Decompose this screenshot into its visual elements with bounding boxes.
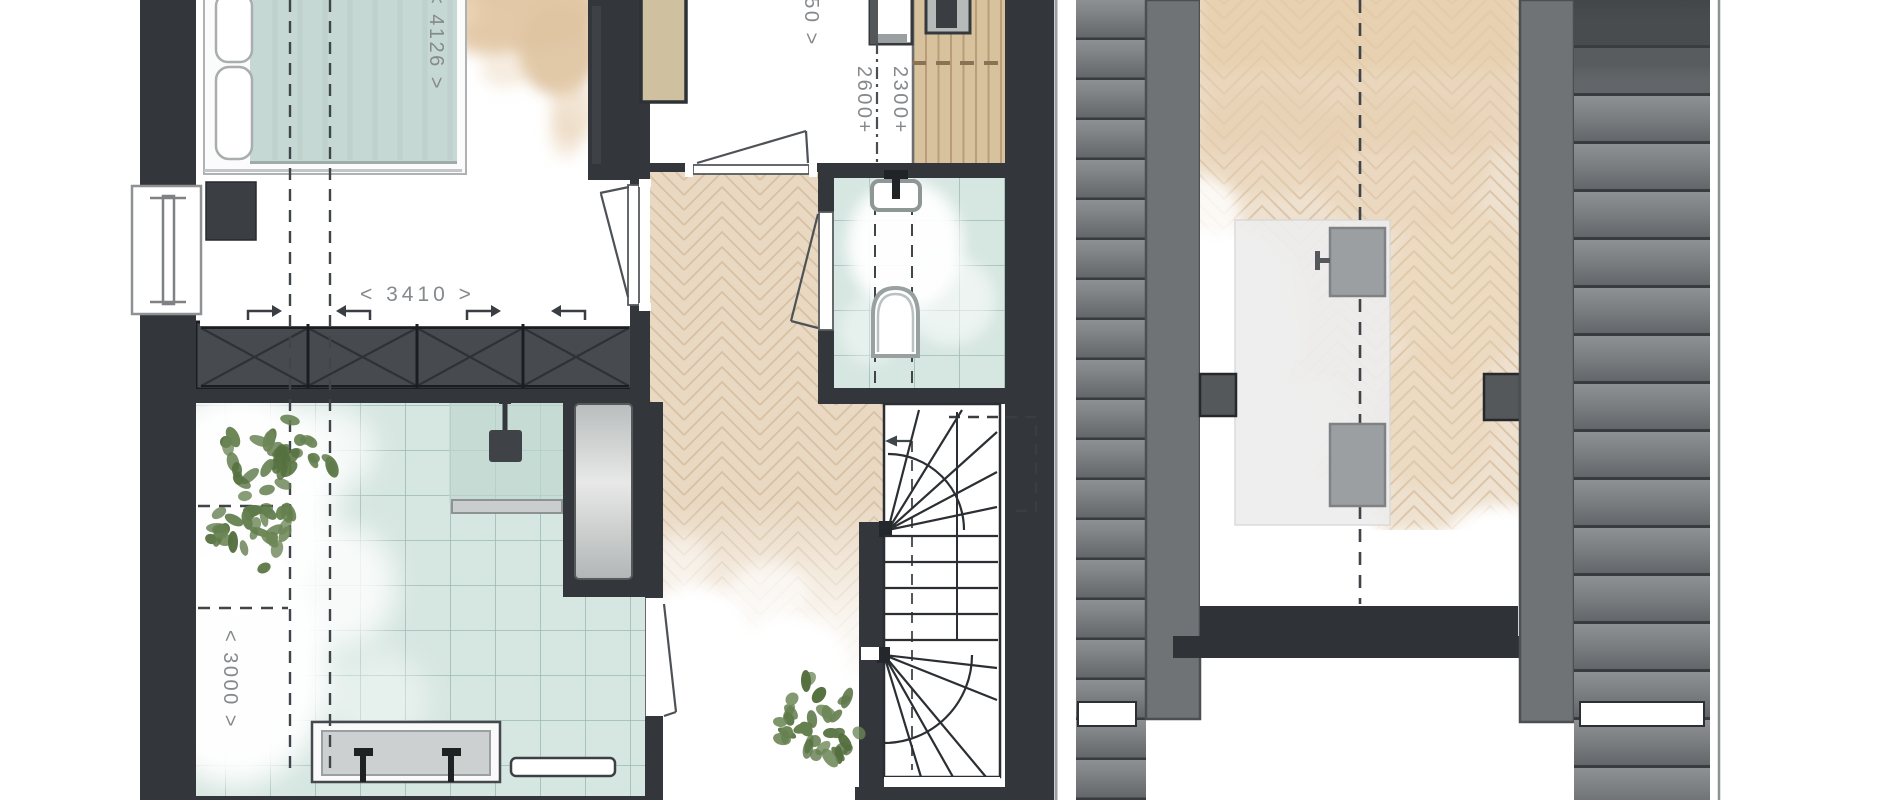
svg-text:< 3000 >: < 3000 > <box>219 630 241 729</box>
svg-text:< 3410 >: < 3410 > <box>360 283 475 306</box>
svg-text:2300+: 2300+ <box>889 66 911 135</box>
svg-text:1950 >: 1950 > <box>800 0 822 47</box>
svg-text:< 4126 >: < 4126 > <box>425 0 447 91</box>
svg-text:2600+: 2600+ <box>853 66 875 135</box>
